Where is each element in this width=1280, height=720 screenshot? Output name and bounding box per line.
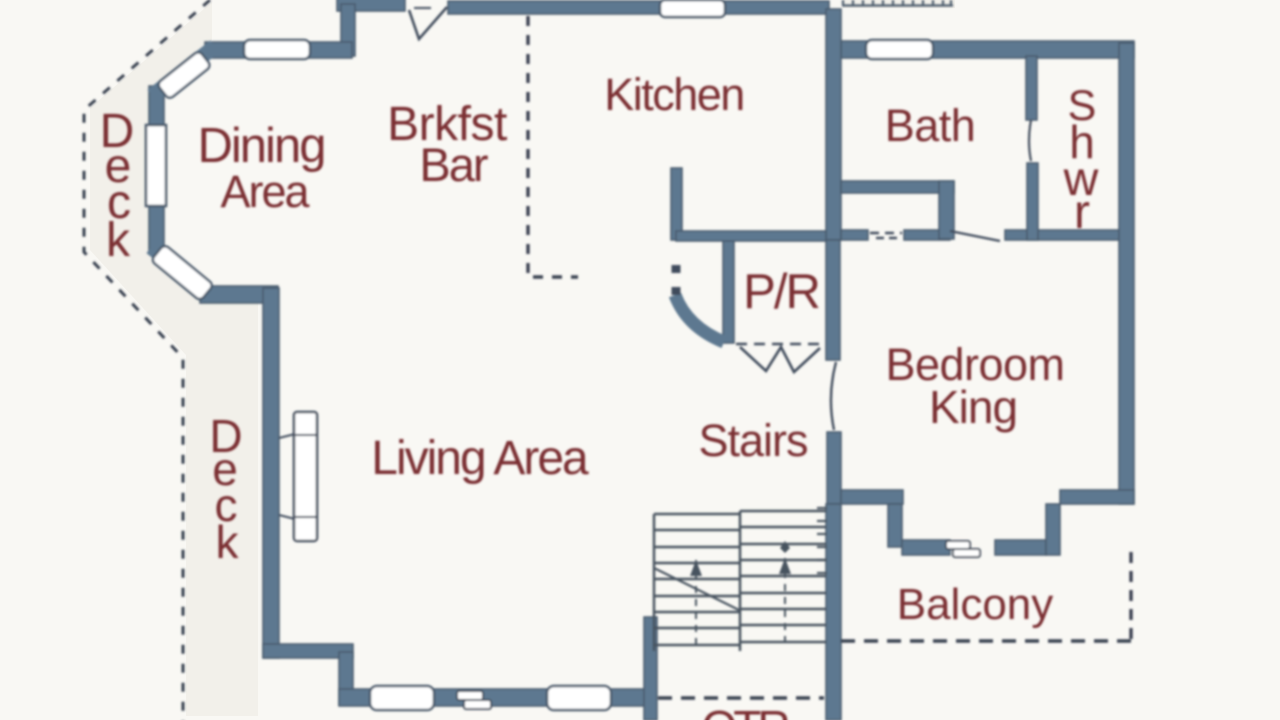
svg-text:Stairs: Stairs — [698, 415, 807, 466]
svg-text:Bar: Bar — [419, 138, 487, 191]
svg-text:k: k — [216, 516, 240, 568]
svg-text:P/R: P/R — [743, 265, 819, 319]
svg-text:k: k — [106, 214, 131, 267]
svg-text:Balcony: Balcony — [897, 580, 1054, 629]
svg-text:Bath: Bath — [885, 100, 976, 151]
svg-text:Area: Area — [220, 166, 310, 217]
svg-text:Living Area: Living Area — [371, 432, 589, 485]
svg-text:Kitchen: Kitchen — [604, 69, 744, 120]
svg-text:Dining: Dining — [198, 119, 325, 173]
svg-text:King: King — [929, 381, 1017, 433]
svg-text:OTR: OTR — [701, 701, 789, 720]
svg-text:r: r — [1074, 186, 1090, 239]
